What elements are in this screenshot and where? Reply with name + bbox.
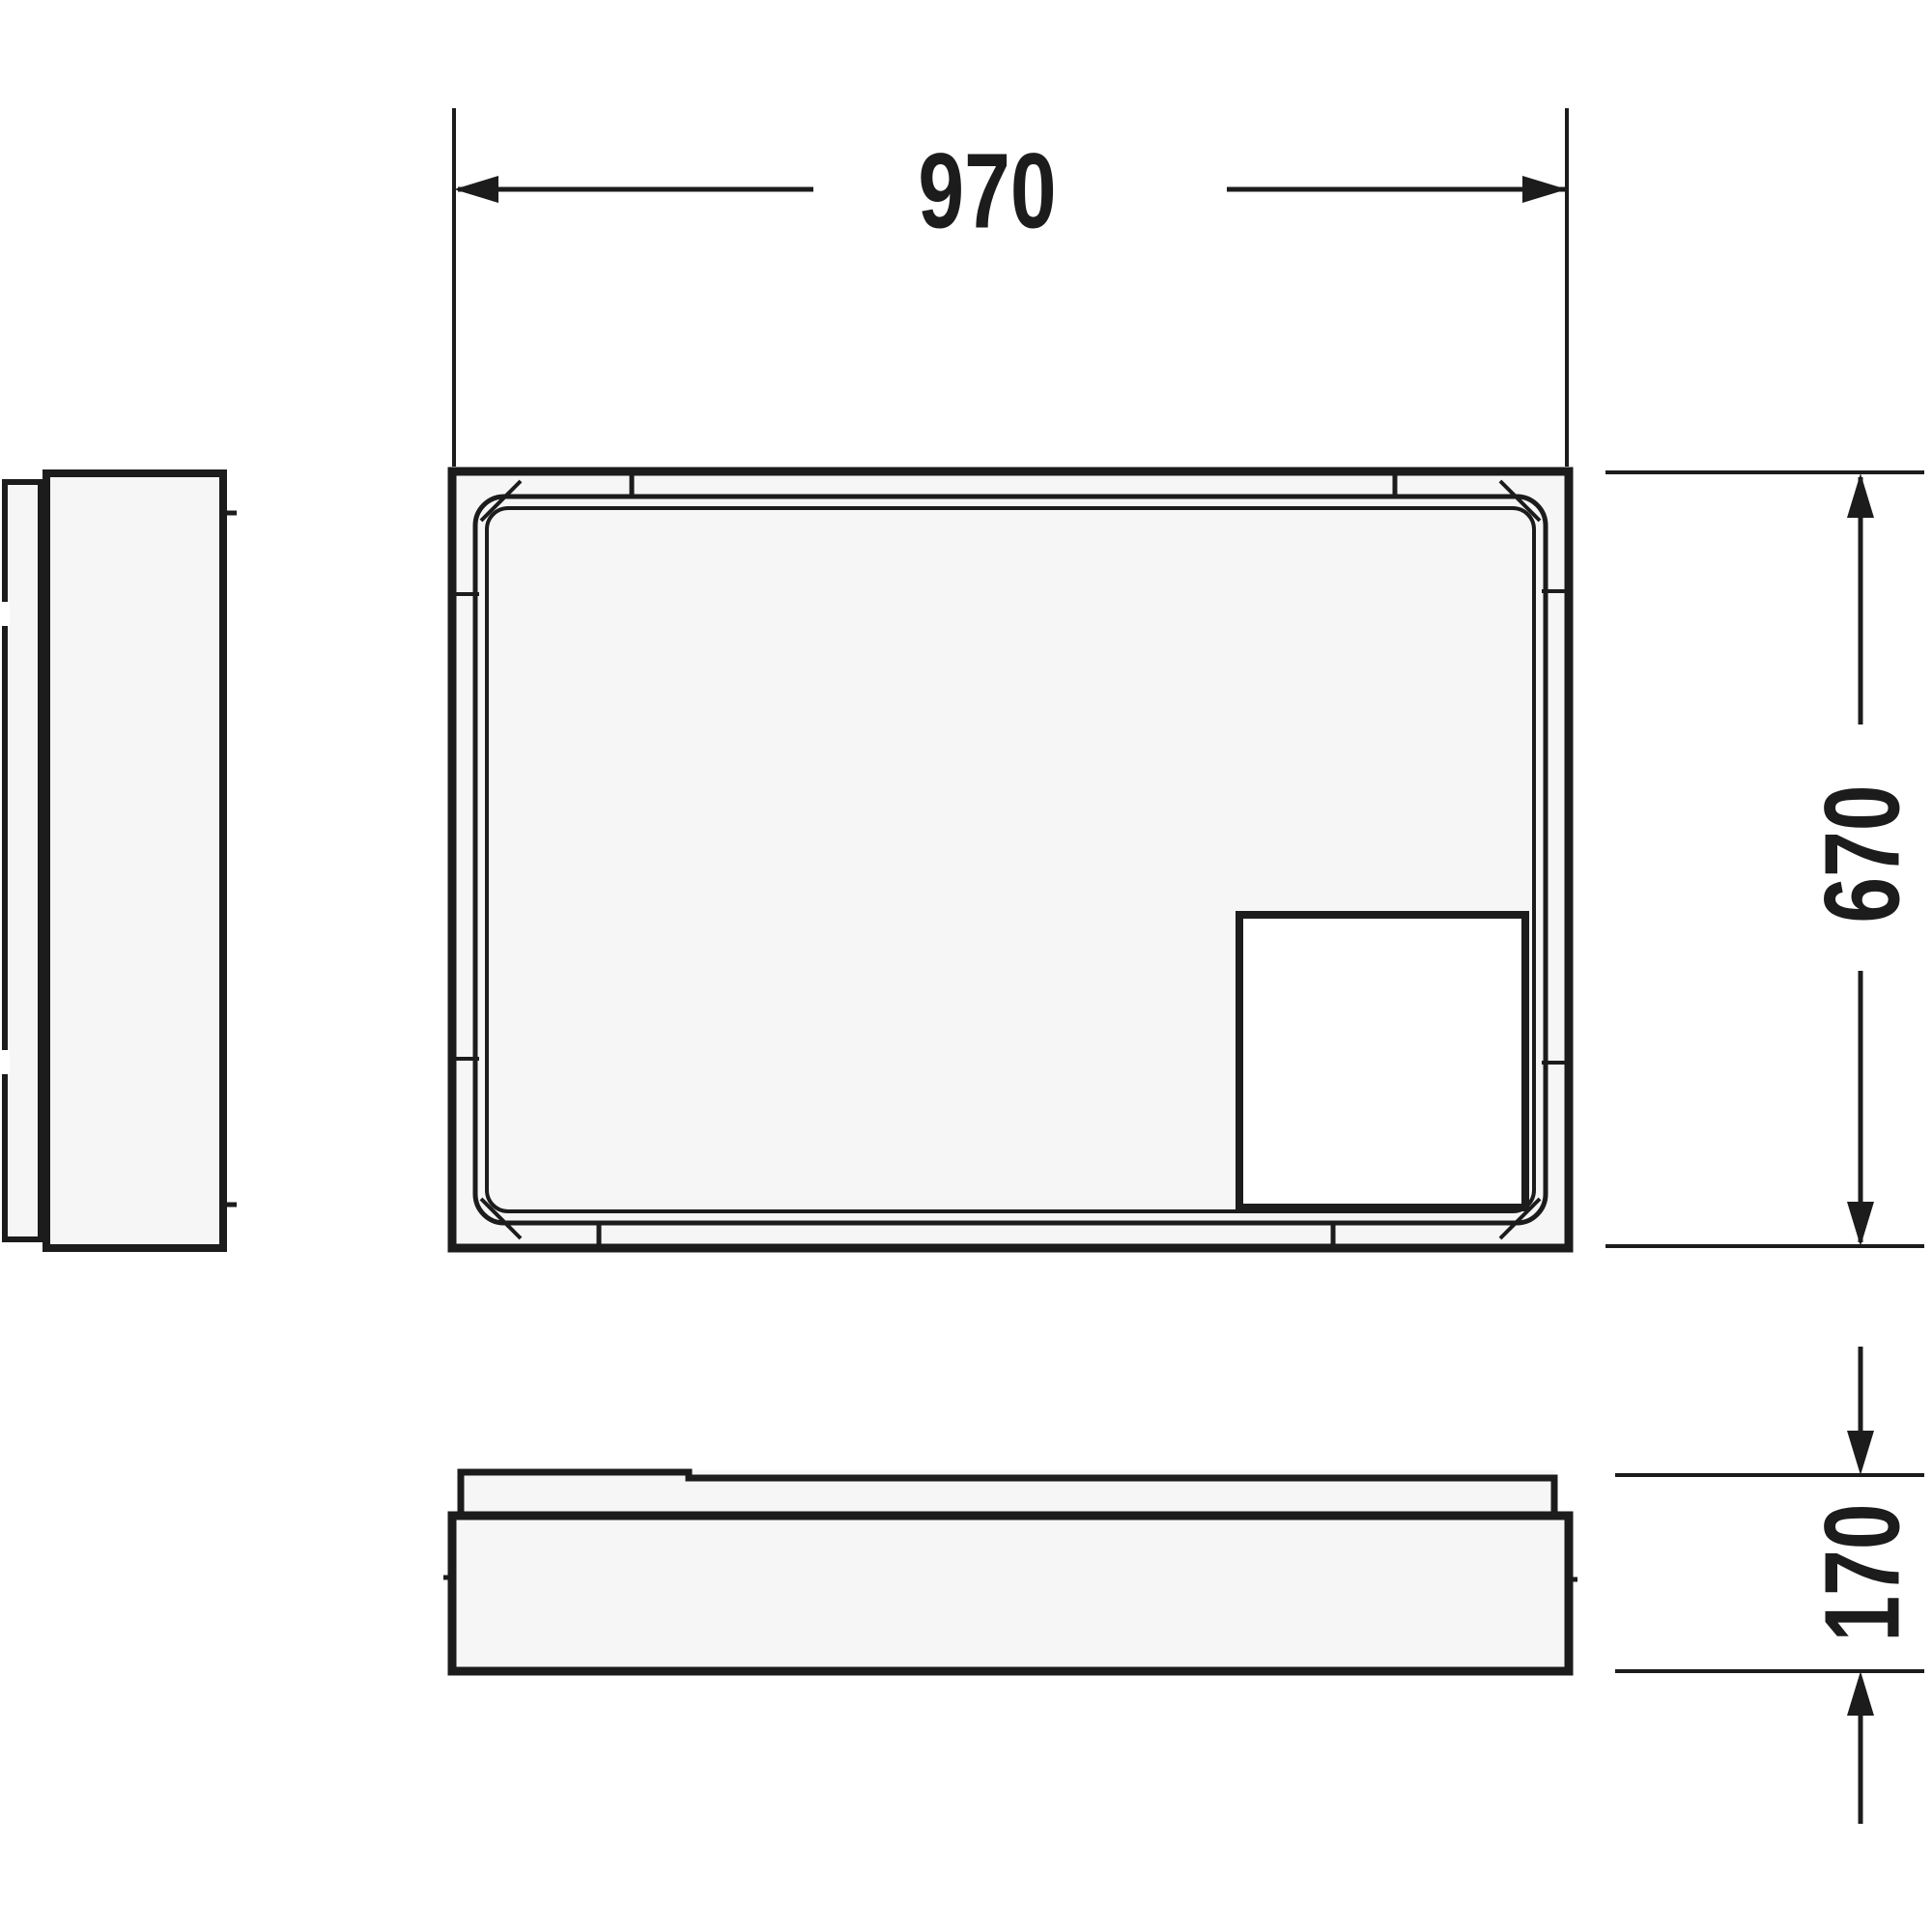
dimension-width: 970	[454, 108, 1567, 467]
depth-dimension-label: 670	[1803, 784, 1921, 923]
front-view	[443, 1470, 1577, 1671]
depth-arrow-bottom	[1847, 1202, 1874, 1246]
width-dimension-label: 970	[918, 131, 1056, 250]
side-view-strip-gap-upper	[0, 602, 10, 626]
side-view-strip-gap-lower	[0, 1050, 10, 1074]
drain-access-panel	[1239, 915, 1525, 1207]
depth-arrow-top	[1847, 473, 1874, 518]
dimension-depth: 670	[1605, 472, 1924, 1246]
dimension-drawing: 970 670 170	[0, 0, 1932, 1932]
dimension-height: 170	[1615, 1347, 1924, 1824]
side-view-panel	[46, 473, 223, 1248]
height-arrow-up	[1847, 1671, 1874, 1716]
width-arrow-right	[1522, 176, 1567, 203]
side-view	[0, 473, 237, 1248]
side-view-rim-strip	[5, 482, 41, 1239]
height-arrow-down	[1847, 1431, 1874, 1475]
front-view-body	[452, 1516, 1569, 1671]
height-dimension-label: 170	[1803, 1503, 1921, 1641]
width-arrow-left	[454, 176, 498, 203]
plan-view	[452, 471, 1569, 1248]
